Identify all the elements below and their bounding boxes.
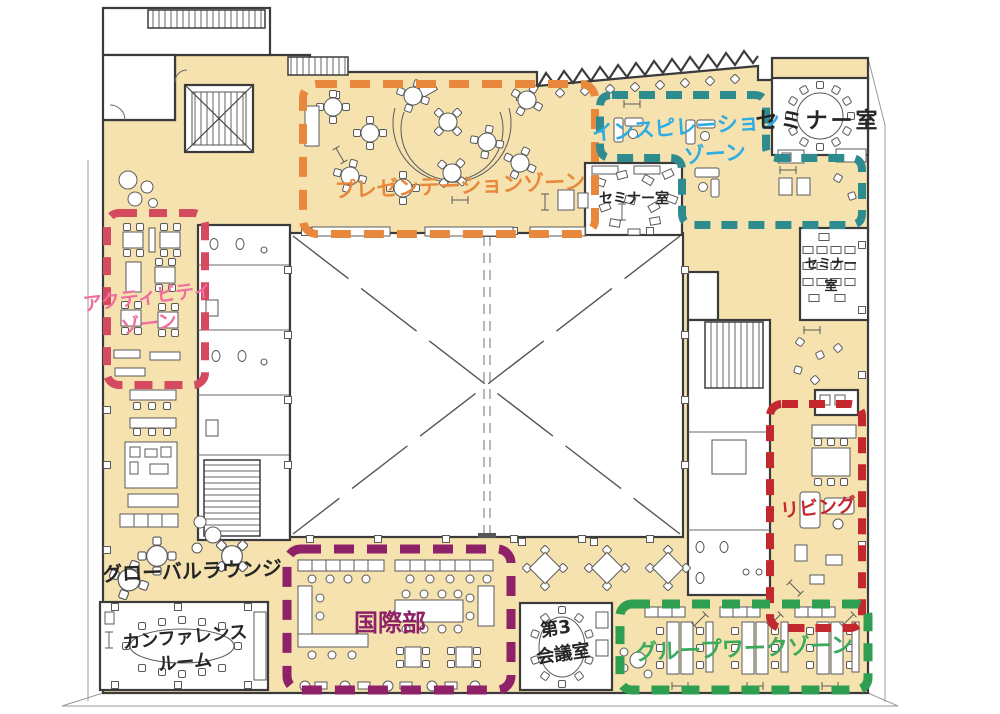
label-international-zone: 国際部 [354,609,426,637]
stair-bottom-left [204,460,260,536]
atrium-void [290,232,683,538]
stair-right [705,322,763,388]
svg-text:ゾーン: ゾーン [683,140,746,168]
floor-plan-svg: プレゼンテーションゾーン インスピレーション ゾーン アクティビティ ゾーン リ… [0,0,1000,714]
service-core-right [688,272,770,595]
label-seminar-top-right: セミナー室 [755,108,880,134]
svg-text:室: 室 [824,278,837,294]
seminar-room-right [800,228,868,320]
floor-plan-canvas: プレゼンテーションゾーン インスピレーション ゾーン アクティビティ ゾーン リ… [0,0,1000,714]
escalator-strip [148,10,265,28]
label-seminar-center: セミナー室 [599,190,669,207]
svg-text:第3: 第3 [539,615,572,641]
stair-top-left [185,85,253,152]
svg-text:セミナー: セミナー [805,257,857,272]
entry-room [103,55,175,120]
escalator-strip-2 [288,57,348,75]
service-core-left [198,225,290,540]
